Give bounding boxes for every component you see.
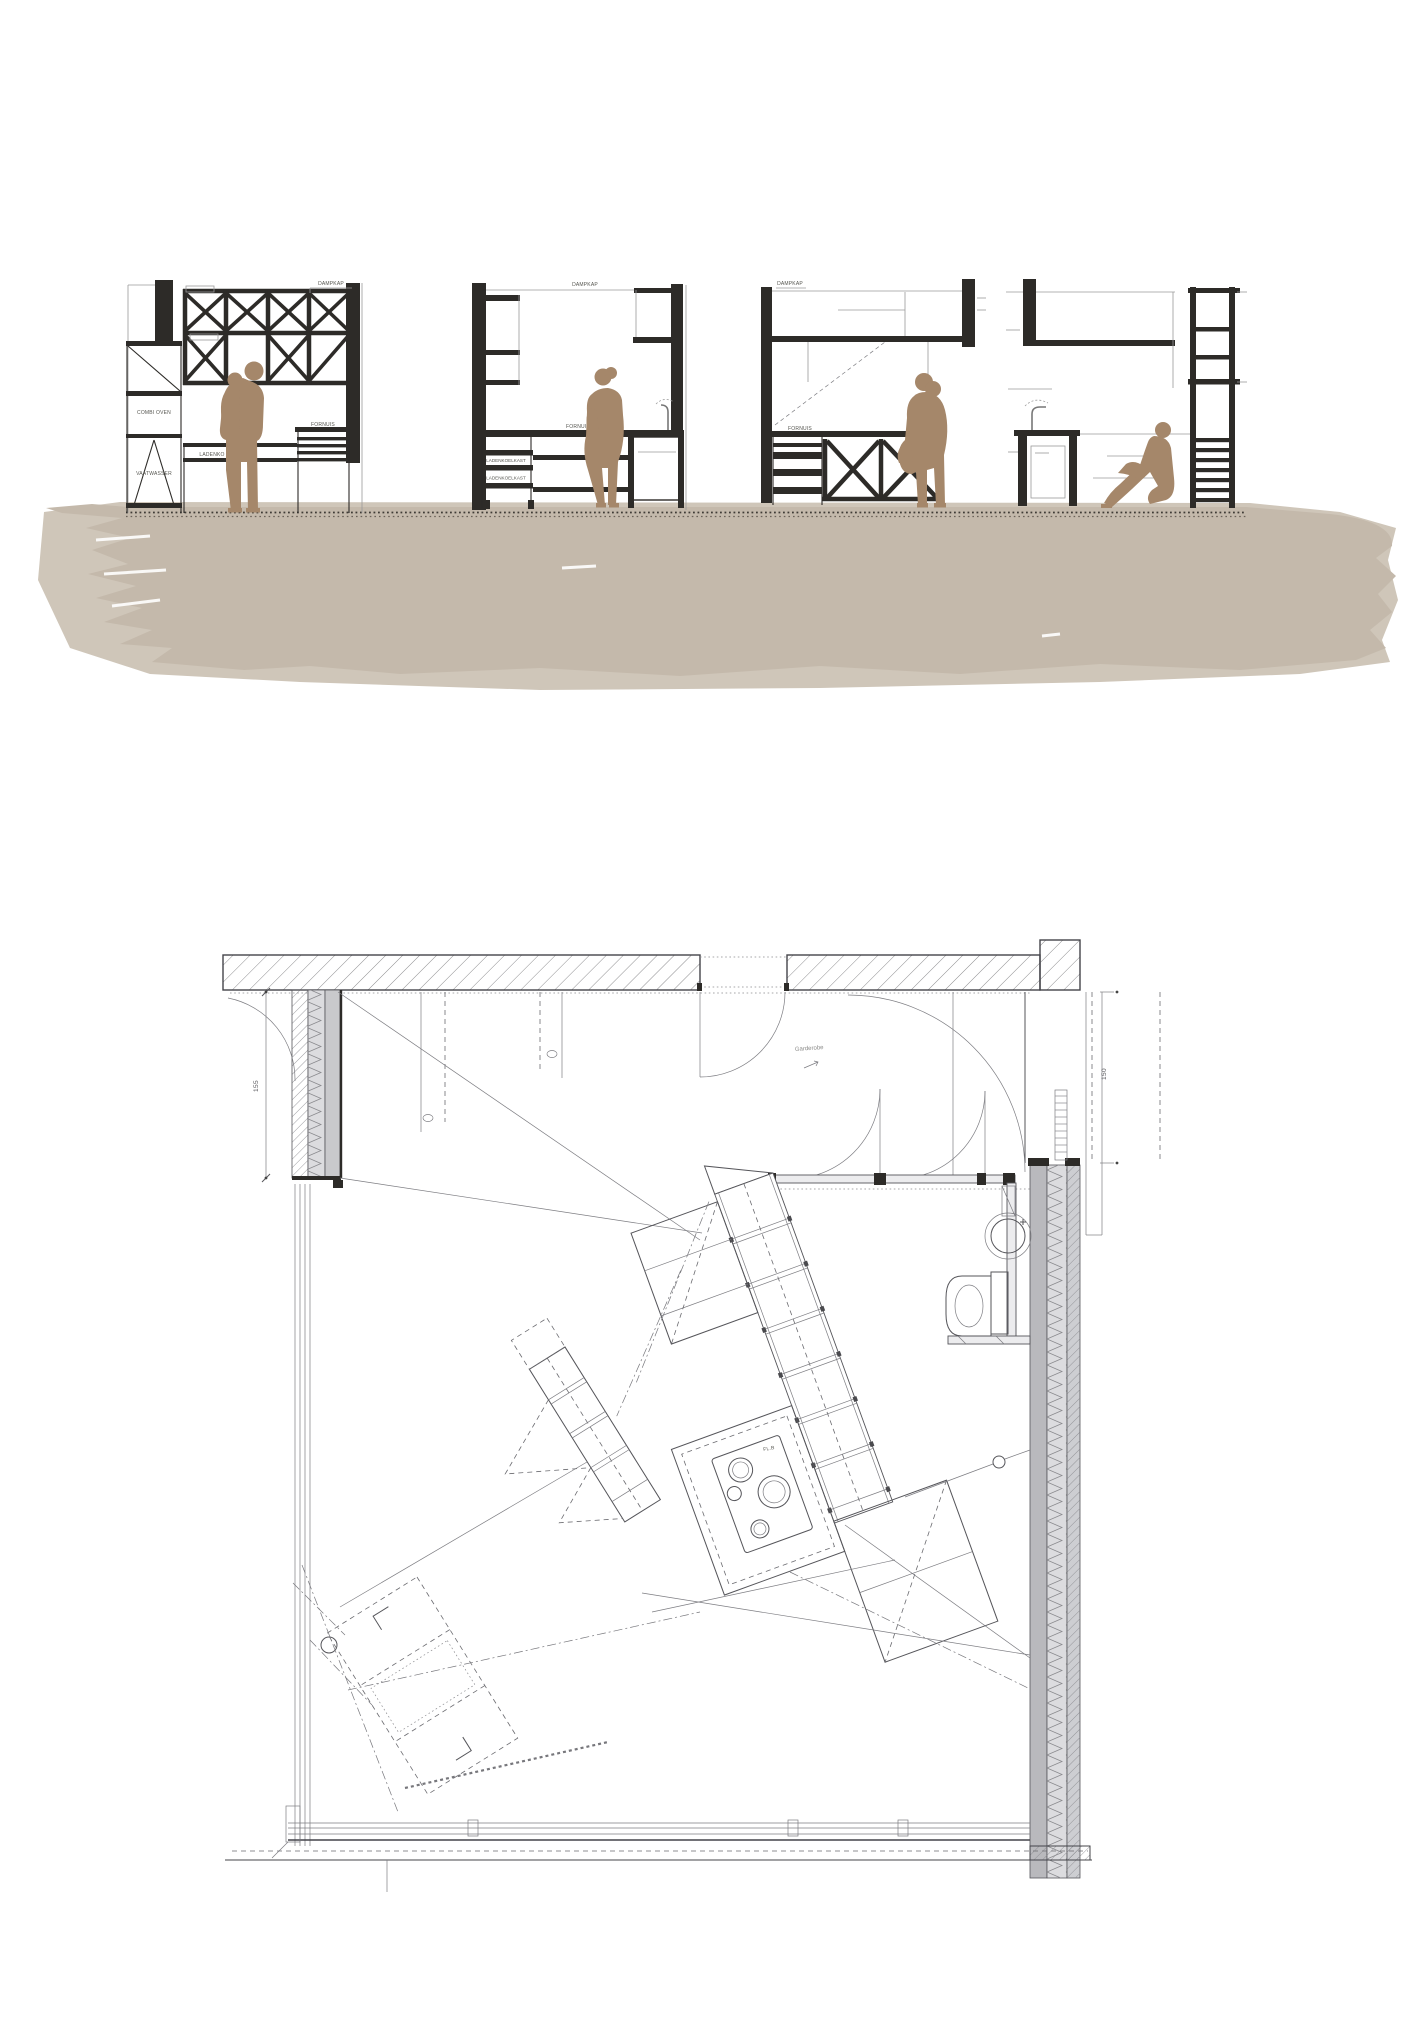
elevation-section-2: DAMPKAP LADENKOELKAST LADENKOELKAST FORN… bbox=[472, 282, 686, 510]
cooktop: FL.B bbox=[711, 1435, 813, 1554]
annotation-text: Garderobe bbox=[795, 1045, 825, 1053]
faucet bbox=[661, 405, 668, 432]
label-ladenkoelkast-2: LADENKOELKAST bbox=[486, 476, 526, 481]
toilet bbox=[946, 1272, 1008, 1336]
architectural-sheet: COMBI OVEN VAATWASSER DAMPK bbox=[0, 0, 1428, 2028]
figure-woman-standing bbox=[584, 367, 623, 508]
label-vaatwasser: VAATWASSER bbox=[136, 471, 172, 477]
label-dampkap-1: DAMPKAP bbox=[318, 281, 344, 287]
dimension-right: 150 bbox=[1100, 991, 1118, 1165]
dim-155: 155 bbox=[253, 1080, 260, 1092]
faucet bbox=[1032, 407, 1046, 430]
elevation-section-1: COMBI OVEN VAATWASSER DAMPK bbox=[126, 280, 362, 513]
label-cooktop: FL.B bbox=[763, 1445, 776, 1453]
cross-braced-shelving bbox=[183, 289, 351, 385]
dim-150: 150 bbox=[1101, 1068, 1108, 1080]
wall-left bbox=[292, 990, 343, 1188]
door-arc bbox=[228, 998, 295, 1081]
ground-brush-texture bbox=[38, 502, 1398, 690]
door-arc-large bbox=[848, 995, 1025, 1172]
label-dampkap-3: DAMPKAP bbox=[777, 281, 803, 287]
post bbox=[155, 280, 173, 343]
drawing-svg: COMBI OVEN VAATWASSER DAMPK bbox=[0, 0, 1428, 2028]
slat-stack bbox=[1196, 438, 1229, 502]
label-dampkap-2: DAMPKAP bbox=[572, 282, 598, 288]
wall-top bbox=[223, 940, 1080, 993]
ceiling-tracks bbox=[421, 992, 1025, 1175]
figure-person-reclining bbox=[1101, 422, 1174, 508]
door-swings bbox=[228, 992, 1025, 1179]
window-left bbox=[295, 1184, 337, 1846]
plan-annotation: Garderobe bbox=[795, 1045, 825, 1068]
elevation-section-4 bbox=[1006, 279, 1247, 508]
projection-lines bbox=[293, 1565, 700, 1812]
wall-right bbox=[1028, 992, 1160, 1878]
label-ladenkast: LADENKO bbox=[199, 452, 224, 458]
floor-plan: 155 bbox=[223, 940, 1160, 1892]
label-combi-oven: COMBI OVEN bbox=[137, 410, 171, 416]
figure-woman-profile bbox=[898, 373, 948, 508]
louvre-panel bbox=[1055, 1090, 1067, 1160]
door-arc bbox=[897, 1091, 985, 1179]
door-arc bbox=[700, 992, 785, 1077]
window-bottom bbox=[225, 1806, 1092, 1892]
label-ladenkoelkast-1: LADENKOELKAST bbox=[486, 458, 526, 463]
dashed-furniture-outline bbox=[327, 1577, 518, 1794]
angled-kitchen-island: FL.B bbox=[547, 1125, 998, 1720]
door-arc bbox=[790, 1089, 880, 1179]
elevation-section-3: DAMPKAP FORNUIS bbox=[761, 279, 986, 508]
